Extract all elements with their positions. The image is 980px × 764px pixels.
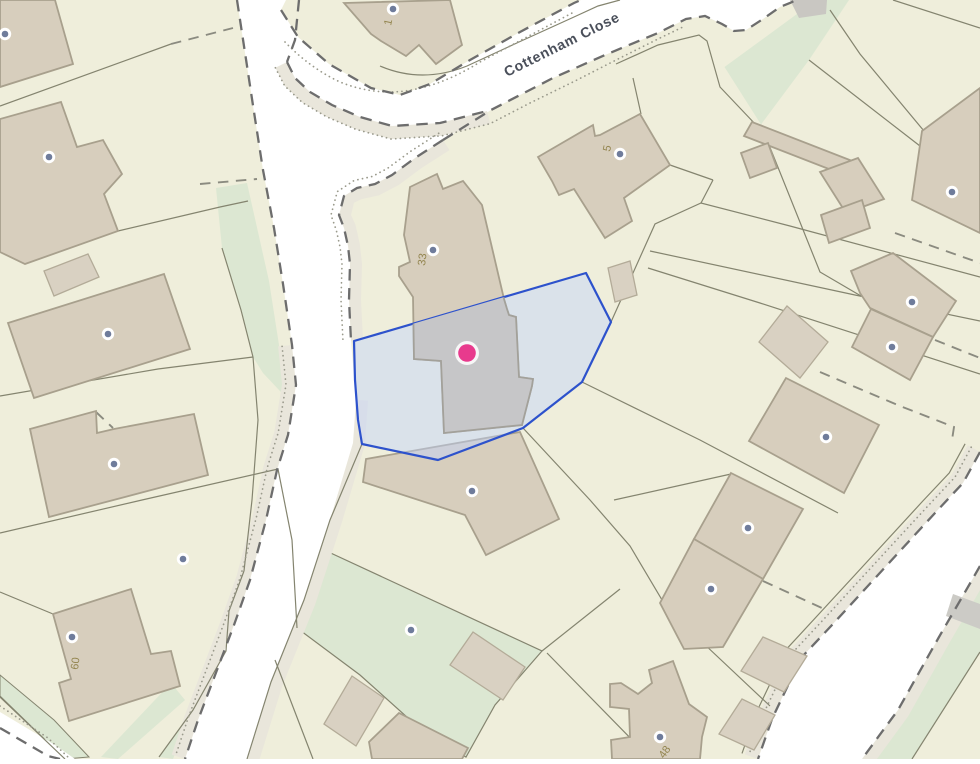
svg-text:33: 33	[416, 253, 429, 267]
svg-text:60: 60	[69, 657, 82, 671]
